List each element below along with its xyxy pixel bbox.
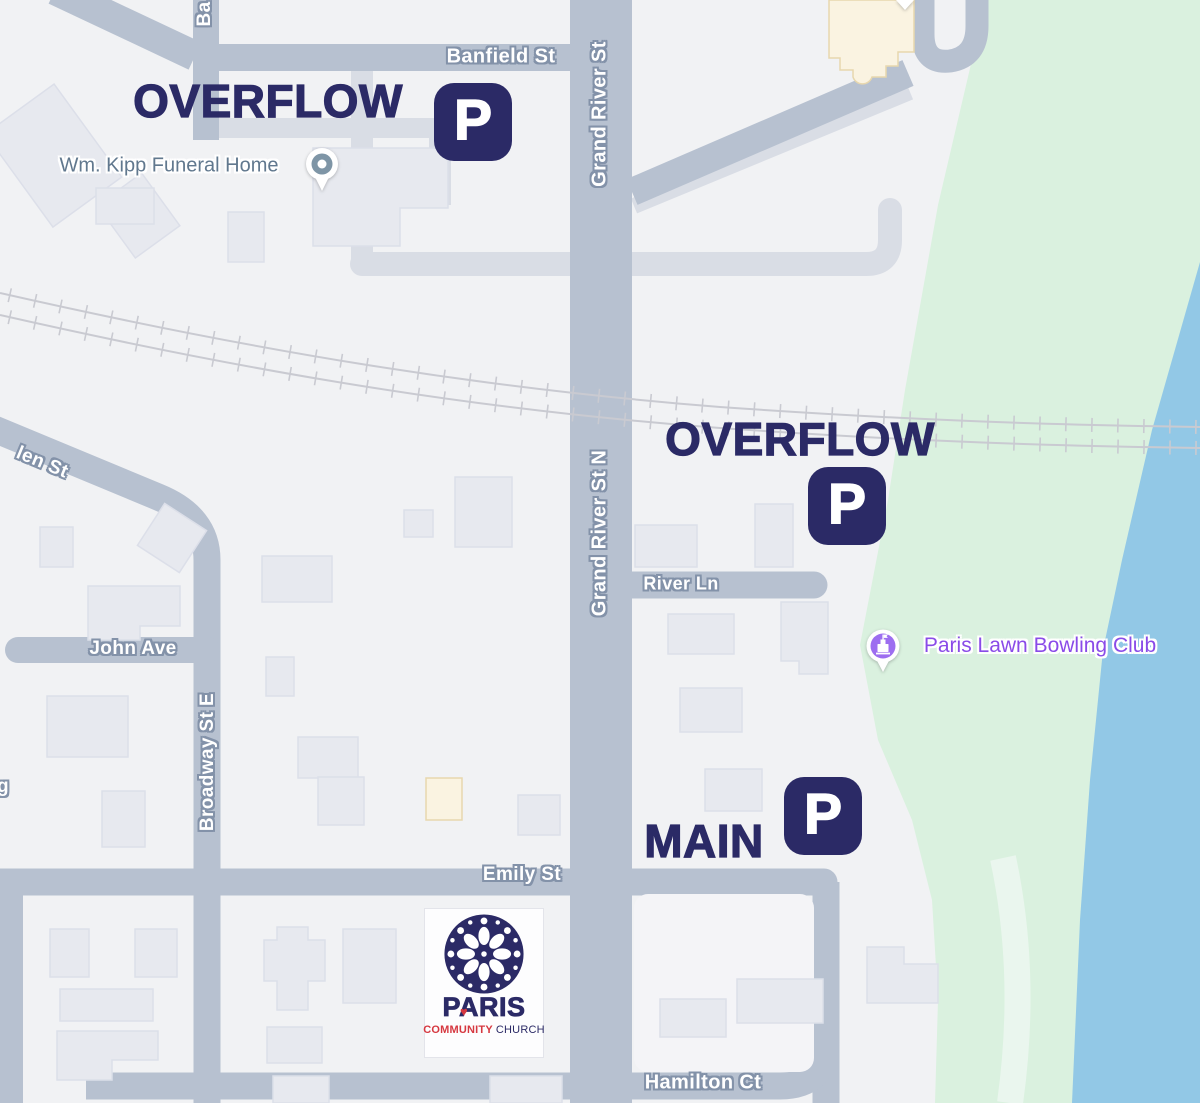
- parking-icon-overflow-mid: P: [808, 467, 886, 545]
- street-label-banfield: Banfield St: [447, 46, 556, 69]
- rosette-icon: [441, 911, 527, 997]
- street-label-g-partial: g: [0, 776, 9, 798]
- overflow-label-mid: OVERFLOW: [665, 412, 935, 466]
- paris-community-church-logo: PARIS ♥ COMMUNITY CHURCH: [424, 908, 544, 1058]
- street-label-emily: Emily St: [483, 864, 561, 886]
- logo-subtitle: COMMUNITY CHURCH: [423, 1024, 545, 1036]
- parking-letter: P: [828, 476, 866, 533]
- main-label: MAIN: [644, 814, 764, 868]
- map-canvas[interactable]: Banfield St Ba Grand River St Grand Rive…: [0, 0, 1200, 1103]
- heart-icon: ♥: [460, 1005, 468, 1018]
- street-label-john-ave: John Ave: [89, 638, 176, 660]
- parking-letter: P: [454, 92, 492, 149]
- parking-letter: P: [804, 786, 842, 843]
- street-label-grand-river-n: Grand River St N: [589, 450, 612, 616]
- parking-icon-overflow-top: P: [434, 83, 512, 161]
- street-label-broadway: Broadway St E: [197, 693, 219, 831]
- poi-label-bowling-club[interactable]: Paris Lawn Bowling Club: [924, 634, 1156, 658]
- street-label-grand-river: Grand River St: [589, 41, 612, 187]
- road-banfield: [193, 44, 632, 71]
- building-cream-emily: [426, 778, 462, 820]
- street-label-ba-partial: Ba: [194, 1, 216, 26]
- logo-title: PARIS ♥: [442, 994, 525, 1021]
- street-label-hamilton-ct: Hamilton Ct: [645, 1072, 762, 1095]
- street-label-river-ln: River Ln: [643, 574, 718, 595]
- poi-label-funeral-home[interactable]: Wm. Kipp Funeral Home: [60, 155, 279, 178]
- parking-icon-main: P: [784, 777, 862, 855]
- overflow-label-top: OVERFLOW: [133, 74, 403, 128]
